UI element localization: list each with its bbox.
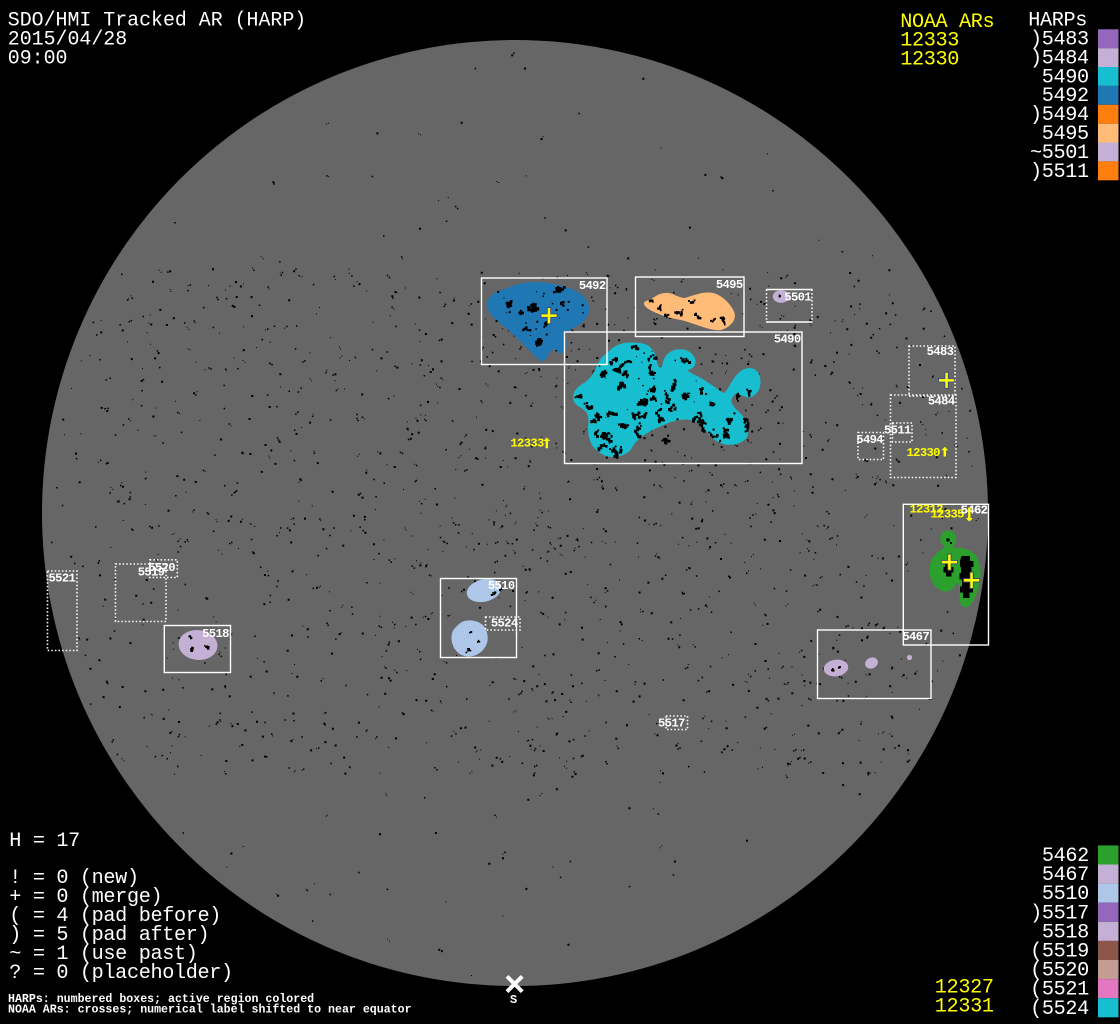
svg-text:12333: 12333 (510, 436, 544, 450)
svg-text:12330: 12330 (900, 49, 959, 72)
svg-text:5483: 5483 (927, 345, 954, 359)
svg-text:5520: 5520 (148, 561, 175, 575)
svg-text:5492: 5492 (579, 279, 606, 293)
svg-text:5517: 5517 (658, 716, 685, 730)
svg-text:5524: 5524 (491, 617, 518, 631)
svg-text:)5511: )5511 (1030, 161, 1089, 184)
svg-text:5518: 5518 (202, 627, 229, 641)
svg-text:5467: 5467 (902, 630, 929, 644)
svg-text:09:00: 09:00 (8, 47, 68, 70)
svg-text:S: S (510, 993, 517, 1007)
svg-text:12331: 12331 (935, 996, 994, 1019)
svg-text:5495: 5495 (716, 278, 743, 292)
svg-text:12330: 12330 (907, 446, 941, 460)
svg-text:5511: 5511 (884, 424, 911, 438)
svg-text:5494: 5494 (856, 433, 883, 447)
svg-text:5501: 5501 (784, 290, 811, 304)
svg-text:5484: 5484 (928, 394, 955, 408)
svg-text:12335: 12335 (931, 508, 965, 522)
svg-text:(5524: (5524 (1030, 998, 1089, 1021)
svg-text:5510: 5510 (488, 579, 515, 593)
svg-text:? = 0 (placeholder): ? = 0 (placeholder) (9, 962, 233, 985)
svg-text:H = 17: H = 17 (9, 830, 80, 853)
svg-text:5521: 5521 (49, 571, 76, 585)
svg-text:5462: 5462 (961, 503, 988, 517)
svg-text:5490: 5490 (774, 333, 801, 347)
svg-text:NOAA ARs: crosses; numerical l: NOAA ARs: crosses; numerical label shift… (8, 1003, 412, 1016)
